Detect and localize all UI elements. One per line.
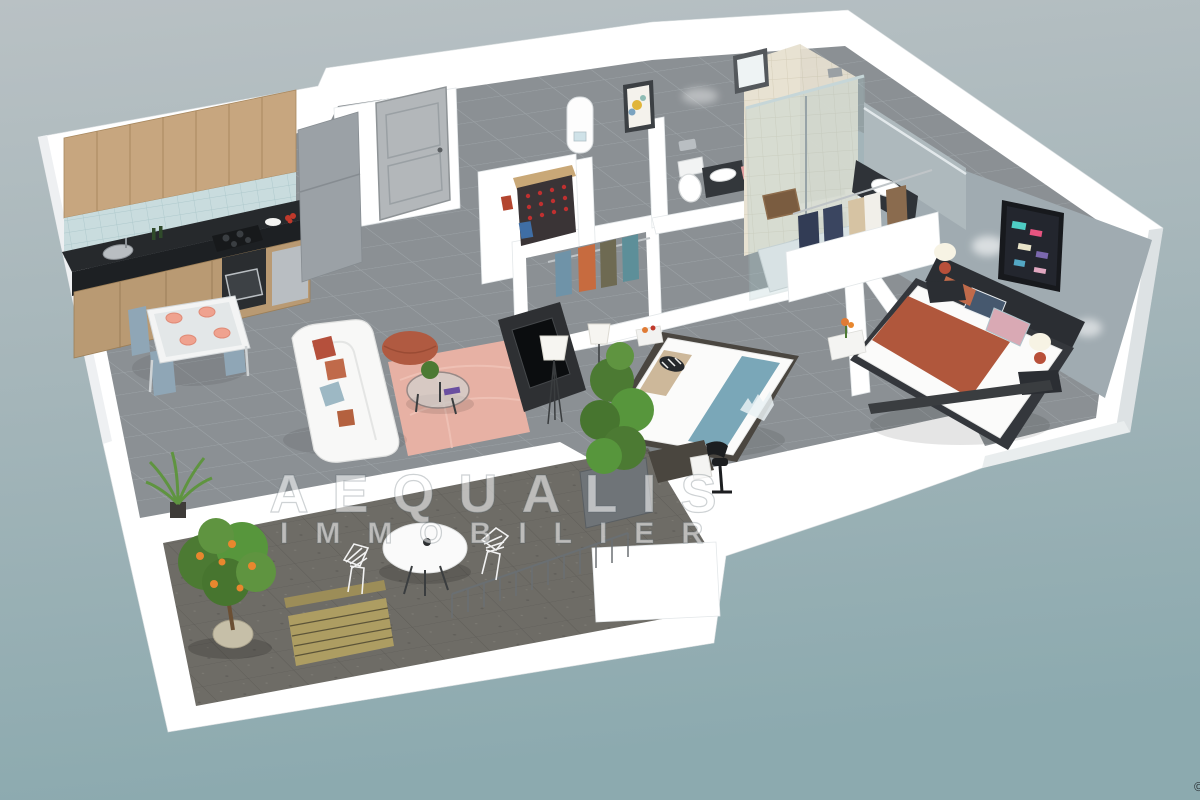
water-heater bbox=[567, 97, 593, 153]
garment-teal bbox=[622, 234, 639, 282]
sofa-cushion-terracotta bbox=[325, 358, 347, 380]
watermark: AEQUALIS IMMOBILIER bbox=[269, 464, 740, 550]
window-glass bbox=[737, 54, 765, 88]
bedside-lamp-shade bbox=[934, 243, 956, 261]
art-canvas bbox=[1004, 206, 1059, 286]
fridge bbox=[298, 112, 362, 282]
lamp-shade bbox=[588, 324, 610, 344]
art-blob bbox=[640, 95, 646, 101]
orange-flowers bbox=[841, 318, 849, 326]
ceiling-light-glow bbox=[682, 88, 718, 104]
houseplant-pot bbox=[170, 502, 186, 518]
art-blob bbox=[629, 109, 636, 116]
floorplan-screenshot: AEQUALIS IMMOBILIER © bbox=[0, 0, 1200, 800]
door-handle bbox=[438, 148, 443, 153]
heater-panel bbox=[574, 132, 586, 141]
corner-copyright-mark: © bbox=[1194, 779, 1200, 794]
art-blob bbox=[632, 100, 642, 110]
watermark-line2: IMMOBILIER bbox=[280, 517, 730, 550]
lamp-shade bbox=[540, 336, 568, 360]
wine-bottle bbox=[159, 226, 163, 238]
garment-olive bbox=[600, 239, 617, 288]
master-wall-art bbox=[998, 200, 1064, 292]
watermark-line1: AEQUALIS bbox=[269, 464, 740, 524]
serving-plate bbox=[265, 218, 281, 226]
floorplan-render: AEQUALIS IMMOBILIER © bbox=[0, 0, 1200, 800]
toy bbox=[651, 326, 656, 331]
garment-orange bbox=[578, 244, 596, 292]
wine-bottle bbox=[152, 228, 156, 240]
bedside-lamp-shade bbox=[1029, 333, 1051, 351]
wc-west-wall bbox=[648, 117, 668, 228]
bedside-lamp-base bbox=[939, 262, 951, 274]
orange-flowers bbox=[848, 322, 854, 328]
toy bbox=[642, 327, 648, 333]
sofa-cushion-rust bbox=[337, 409, 355, 427]
pouf bbox=[382, 331, 438, 365]
table-plant bbox=[421, 361, 439, 379]
garment-blue bbox=[555, 250, 572, 297]
bedside-lamp-base bbox=[1034, 352, 1046, 364]
terrace-corner-block bbox=[592, 542, 720, 622]
bathroom-window bbox=[733, 48, 769, 94]
entry-wall-art bbox=[623, 80, 655, 133]
ceiling-light-glow bbox=[972, 236, 1004, 256]
